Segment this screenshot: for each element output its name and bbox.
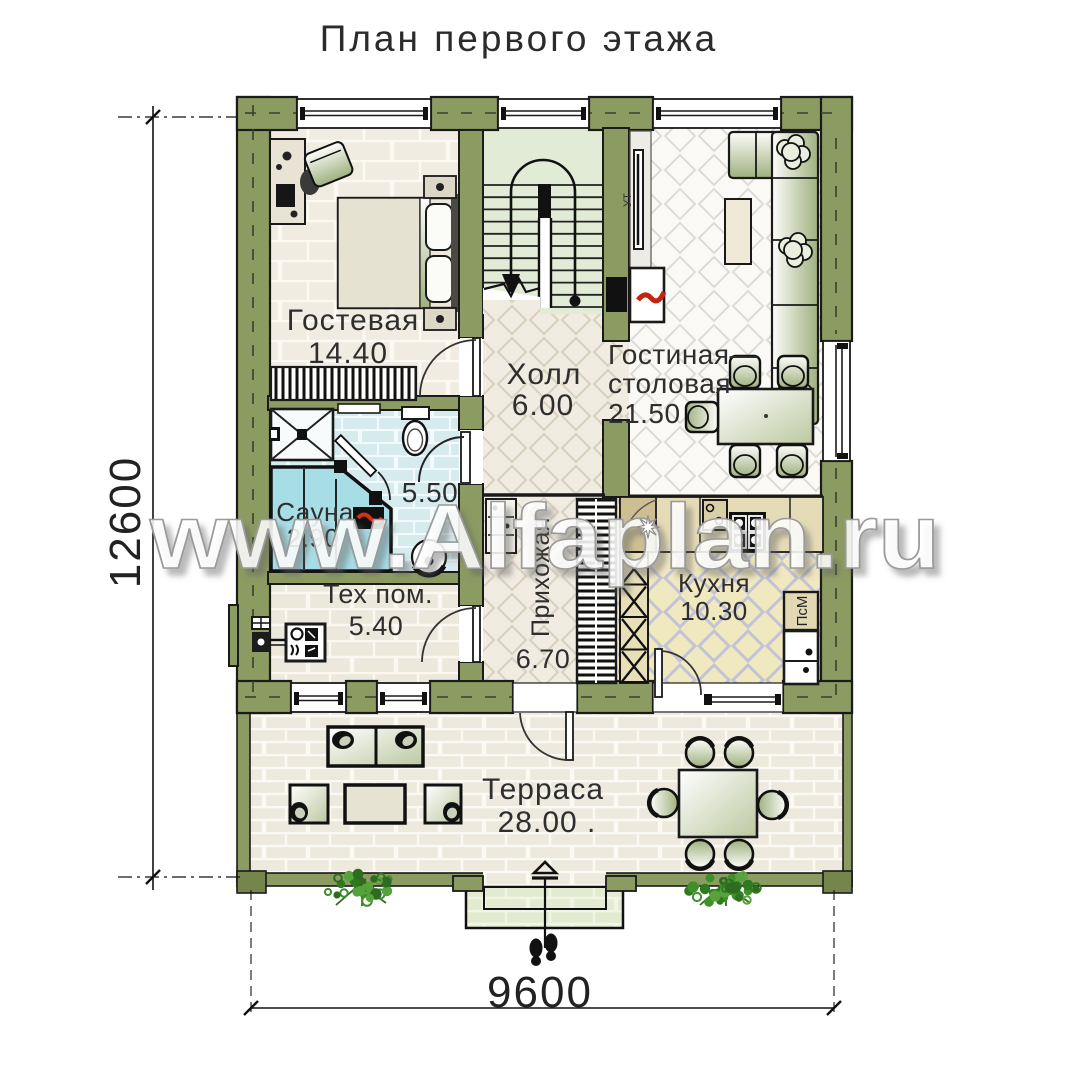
- svg-text:План первого этажа: План первого этажа: [320, 18, 719, 59]
- svg-text:21.50: 21.50: [608, 398, 681, 429]
- svg-text:6.00: 6.00: [512, 389, 574, 422]
- svg-text:Гостиная—: Гостиная—: [608, 339, 758, 370]
- svg-text:9600: 9600: [487, 968, 593, 1017]
- svg-text:www.Alfaplan.ru: www.Alfaplan.ru: [149, 486, 940, 588]
- svg-text:ПсМ: ПсМ: [794, 596, 811, 627]
- svg-text:14.40: 14.40: [308, 337, 388, 370]
- svg-text:столовая: столовая: [608, 368, 731, 399]
- svg-text:Холл: Холл: [507, 358, 582, 391]
- svg-text:5.40: 5.40: [349, 611, 404, 641]
- svg-text:10.30: 10.30: [680, 596, 748, 626]
- svg-text:Терраса: Терраса: [482, 773, 604, 806]
- svg-text:6.70: 6.70: [516, 644, 571, 674]
- svg-text:12600: 12600: [101, 456, 150, 588]
- svg-text:28.00 .: 28.00 .: [498, 806, 597, 839]
- svg-text:УТ: УТ: [622, 193, 634, 207]
- svg-text:Гостевая: Гостевая: [287, 304, 420, 337]
